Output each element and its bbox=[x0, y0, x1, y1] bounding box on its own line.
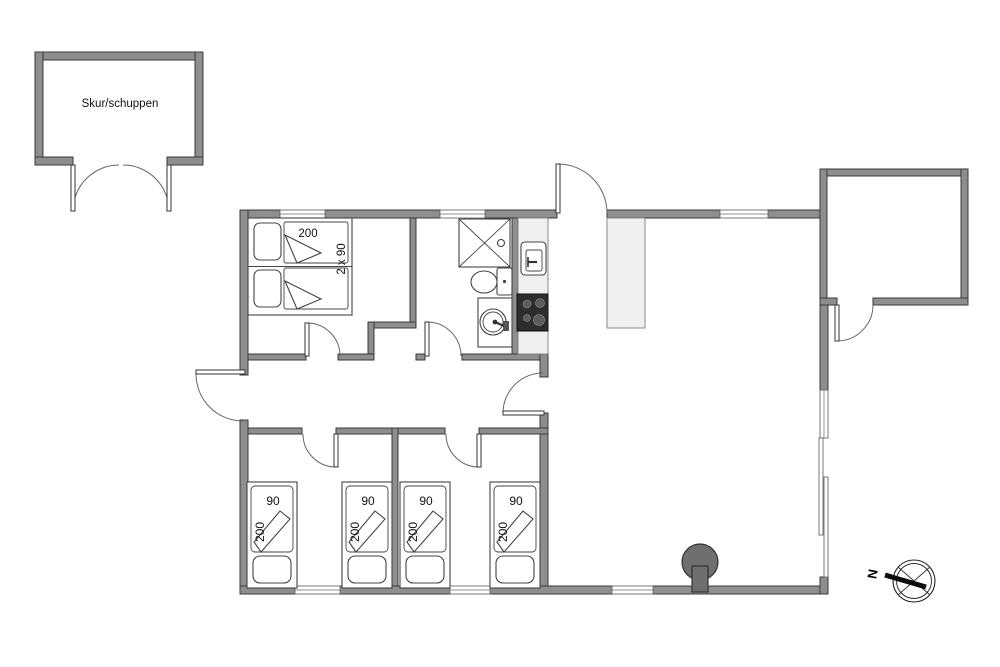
burner bbox=[534, 315, 545, 326]
wall-niche-top bbox=[368, 322, 416, 328]
wall-hall-bottom-b bbox=[336, 428, 445, 434]
west-exterior-door bbox=[196, 370, 245, 421]
shower bbox=[459, 219, 510, 267]
annex-wall-top bbox=[820, 169, 968, 176]
annex-wall-bottom-left bbox=[820, 298, 837, 305]
wall-bottom-4 bbox=[653, 586, 828, 594]
bed1-length-label: 200 bbox=[253, 522, 267, 542]
single-bed-1: 90 200 bbox=[247, 482, 297, 588]
shed-wall-bottom-left bbox=[35, 157, 73, 165]
shed-wall-right bbox=[195, 52, 203, 165]
shed-double-door bbox=[71, 165, 171, 211]
compass-rose: N bbox=[864, 560, 935, 602]
shed: Skur/schuppen bbox=[35, 52, 203, 211]
wall-kitchen-divider bbox=[512, 218, 518, 354]
bed3-length-label: 200 bbox=[406, 522, 420, 542]
burner bbox=[523, 300, 531, 308]
shower-drain bbox=[498, 240, 505, 247]
bed2-width-label: 90 bbox=[361, 494, 375, 508]
hallway-living-door bbox=[503, 373, 544, 415]
wall-hall-top-b bbox=[338, 354, 374, 360]
double-bed: 200 2 x 90 bbox=[248, 218, 352, 315]
kitchen-sink bbox=[521, 242, 546, 275]
bed3-width-label: 90 bbox=[419, 494, 433, 508]
single-bed-2: 90 200 bbox=[342, 482, 392, 588]
double-bed-width-label: 2 x 90 bbox=[336, 243, 348, 274]
pillow bbox=[406, 556, 444, 583]
wall-right-upper bbox=[820, 305, 828, 390]
shed-door-leaf-left bbox=[71, 165, 75, 211]
annex-wall-left bbox=[820, 169, 827, 305]
tall-cabinet bbox=[607, 218, 645, 328]
wall-hall-bottom-a bbox=[248, 428, 302, 434]
sink-faucet bbox=[493, 320, 498, 325]
burner bbox=[536, 299, 545, 308]
floor-plan-canvas: Skur/schuppen bbox=[0, 0, 1000, 667]
kitchen bbox=[517, 218, 645, 354]
wall-hall-top-c bbox=[416, 354, 425, 360]
annex-door bbox=[835, 305, 873, 341]
bed2-length-label: 200 bbox=[348, 522, 362, 542]
single-bed-4: 90 200 bbox=[490, 482, 540, 588]
wall-bedrooms-divider bbox=[392, 428, 398, 586]
burner bbox=[524, 315, 531, 322]
shed-wall-top bbox=[35, 52, 203, 60]
double-bed-length-label: 200 bbox=[298, 228, 317, 240]
stove-pipe bbox=[692, 566, 708, 592]
sliding-door-panel-outer bbox=[819, 438, 823, 535]
wall-bedroom-bath-divider bbox=[410, 218, 416, 328]
wall-top-5 bbox=[768, 210, 822, 218]
pillow bbox=[254, 223, 281, 260]
bathroom-sink bbox=[478, 298, 512, 347]
pillow bbox=[496, 556, 534, 583]
pillow bbox=[253, 556, 291, 583]
entrance-door bbox=[556, 164, 607, 213]
pillow bbox=[254, 270, 281, 307]
pillow bbox=[348, 556, 386, 583]
top-bedroom-door bbox=[305, 323, 340, 356]
wall-top-3 bbox=[485, 210, 557, 218]
compass-north-label: N bbox=[864, 568, 880, 580]
shed-wall-bottom-right bbox=[167, 157, 203, 165]
bathroom-fixtures bbox=[459, 219, 512, 347]
bedroom-b-door bbox=[446, 434, 481, 467]
bed4-length-label: 200 bbox=[496, 522, 510, 542]
annex-room-walls bbox=[820, 169, 968, 305]
toilet bbox=[471, 268, 512, 295]
wall-living-divider-lower bbox=[540, 413, 548, 586]
single-bed-3: 90 200 bbox=[400, 482, 450, 588]
bed4-width-label: 90 bbox=[509, 494, 523, 508]
stove bbox=[517, 294, 548, 331]
bed1-width-label: 90 bbox=[266, 494, 280, 508]
wall-hall-top-a bbox=[248, 354, 306, 360]
wall-living-divider-upper bbox=[540, 354, 548, 377]
annex-wall-bottom-right bbox=[873, 298, 968, 305]
wall-left-upper bbox=[240, 210, 248, 375]
annex-wall-right bbox=[961, 169, 968, 305]
floor-plan: Skur/schuppen bbox=[0, 0, 1000, 667]
shed-label: Skur/schuppen bbox=[82, 98, 159, 110]
sliding-door-panel-inner bbox=[824, 477, 828, 577]
wall-hall-bottom-c bbox=[479, 428, 548, 434]
shed-door-leaf-right bbox=[167, 165, 171, 211]
bathroom-door bbox=[425, 322, 461, 356]
wood-stove bbox=[682, 544, 718, 592]
wall-hall-top-d bbox=[462, 354, 548, 360]
bedroom-a-door bbox=[303, 434, 338, 467]
shed-wall-left bbox=[35, 52, 43, 165]
wall-top-4 bbox=[607, 210, 720, 218]
wall-top-2 bbox=[325, 210, 440, 218]
kitchen-counter bbox=[518, 218, 548, 354]
wall-right-corner bbox=[820, 577, 828, 594]
